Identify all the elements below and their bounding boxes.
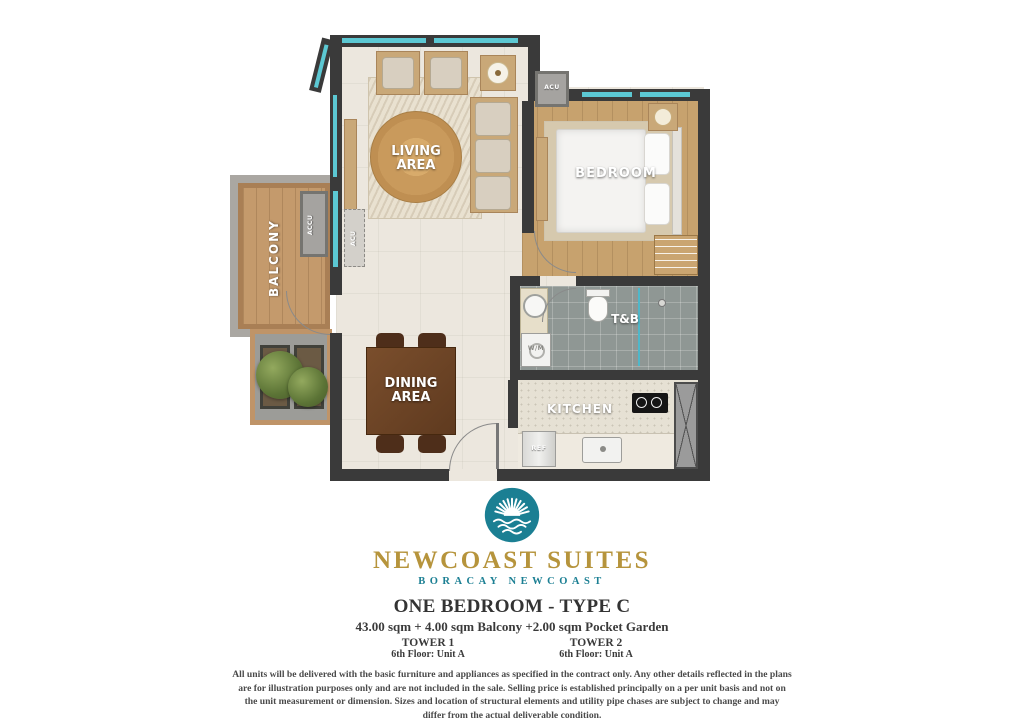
wall bbox=[522, 101, 534, 233]
wall bbox=[510, 370, 700, 380]
tower-1-floor: 6th Floor: Unit A bbox=[352, 649, 504, 660]
shower-head bbox=[658, 299, 666, 307]
console-table bbox=[344, 119, 357, 217]
newcoast-logo-icon bbox=[483, 486, 541, 544]
wall bbox=[508, 380, 518, 428]
armchair bbox=[376, 51, 420, 95]
toilet-bath-label: T&B bbox=[600, 313, 650, 326]
acu-wall-label: ACU bbox=[351, 223, 357, 253]
wall bbox=[330, 469, 710, 481]
disclaimer-text: All units will be delivered with the bas… bbox=[232, 668, 792, 722]
wardrobe bbox=[654, 235, 698, 275]
accu-label: ACCU bbox=[308, 205, 314, 245]
tower-1-name: TOWER 1 bbox=[352, 637, 504, 649]
wall bbox=[510, 286, 520, 370]
window bbox=[342, 38, 426, 43]
side-table-lamp bbox=[480, 55, 516, 91]
window bbox=[640, 92, 690, 97]
pillow bbox=[644, 183, 670, 225]
brand-location: BORACAY NEWCOAST bbox=[0, 576, 1024, 587]
window bbox=[434, 38, 518, 43]
unit-area: 43.00 sqm + 4.00 sqm Balcony +2.00 sqm P… bbox=[0, 619, 1024, 635]
window bbox=[333, 191, 338, 267]
shrub bbox=[288, 367, 328, 407]
dining-chair bbox=[376, 435, 404, 453]
bed bbox=[556, 129, 646, 233]
floor-plan: LIVING AREA BEDROOM BALCONY DINING AREA … bbox=[230, 33, 710, 483]
dining-chair bbox=[418, 435, 446, 453]
floorplan-page: LIVING AREA BEDROOM BALCONY DINING AREA … bbox=[0, 0, 1024, 724]
nightstand-lamp bbox=[648, 103, 678, 131]
tower-info: TOWER 1 6th Floor: Unit A TOWER 2 6th Fl… bbox=[0, 637, 1024, 660]
living-area-label: LIVING AREA bbox=[381, 145, 451, 172]
dining-area-label: DINING AREA bbox=[376, 377, 446, 404]
wm-label: W/M bbox=[521, 346, 551, 352]
wall bbox=[510, 276, 540, 286]
wall bbox=[330, 333, 342, 481]
window bbox=[333, 95, 337, 177]
headboard bbox=[672, 127, 682, 235]
bedroom-bench bbox=[536, 137, 548, 221]
ref-label: REF bbox=[522, 445, 556, 452]
kitchen-label: KITCHEN bbox=[540, 403, 620, 416]
armchair bbox=[424, 51, 468, 95]
sofa bbox=[470, 97, 518, 213]
tower-1: TOWER 1 6th Floor: Unit A bbox=[352, 637, 504, 660]
entrance-door-leaf bbox=[496, 423, 499, 469]
kitchen-sink bbox=[582, 437, 622, 463]
shower-glass-partition bbox=[638, 288, 640, 366]
tower-2: TOWER 2 6th Floor: Unit A bbox=[520, 637, 672, 660]
window bbox=[582, 92, 632, 97]
wall bbox=[576, 276, 710, 286]
title-block: NEWCOAST SUITES BORACAY NEWCOAST ONE BED… bbox=[0, 486, 1024, 660]
balcony-label: BALCONY bbox=[268, 218, 281, 298]
unit-title: ONE BEDROOM - TYPE C bbox=[0, 596, 1024, 618]
tower-2-name: TOWER 2 bbox=[520, 637, 672, 649]
acu-top-label: ACU bbox=[535, 85, 569, 91]
cooktop bbox=[632, 393, 668, 413]
bedroom-label: BEDROOM bbox=[566, 167, 666, 181]
tower-2-floor: 6th Floor: Unit A bbox=[520, 649, 672, 660]
utility-shaft bbox=[674, 382, 698, 469]
brand-name: NEWCOAST SUITES bbox=[0, 547, 1024, 575]
